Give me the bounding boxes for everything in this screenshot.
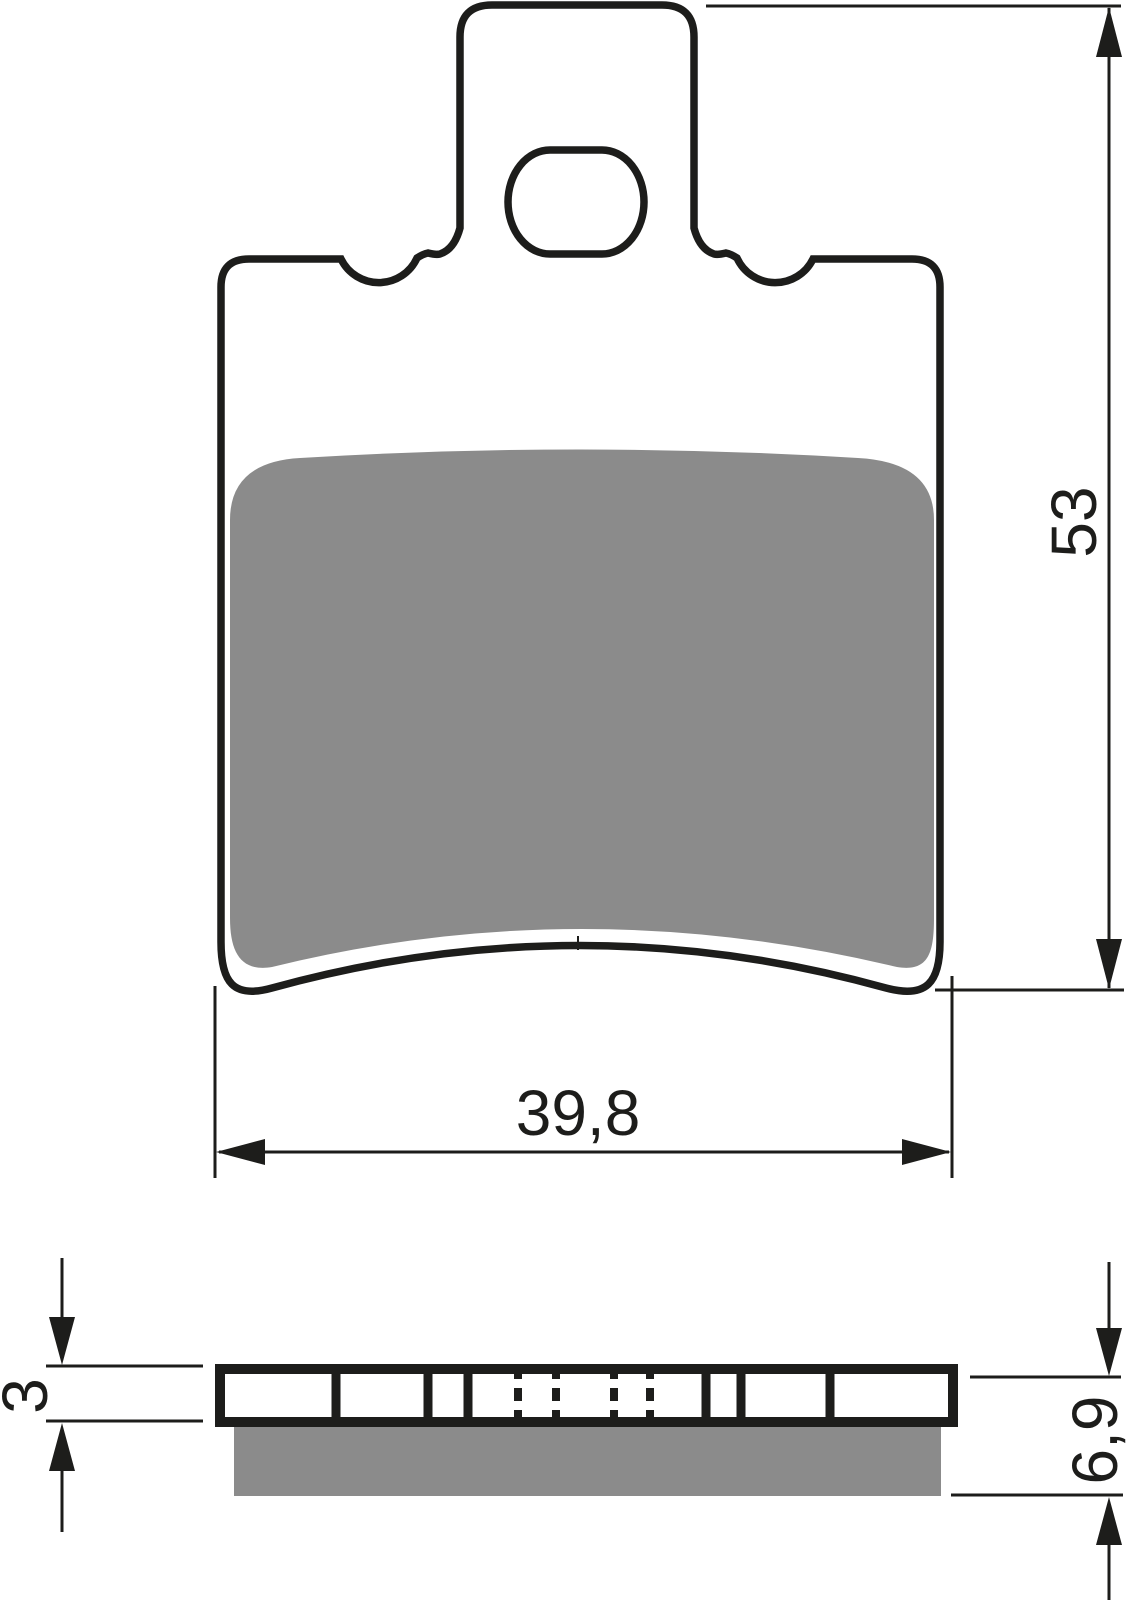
svg-text:53: 53	[1038, 486, 1110, 557]
svg-text:39,8: 39,8	[516, 1077, 641, 1149]
svg-text:6,9: 6,9	[1059, 1396, 1127, 1485]
svg-text:3: 3	[0, 1378, 61, 1414]
